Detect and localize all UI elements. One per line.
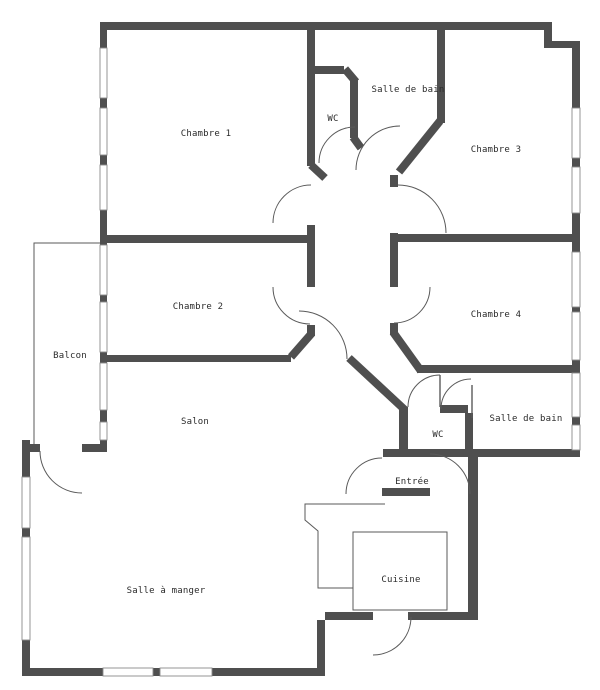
door-arc-salle-de-bain-bas <box>441 379 471 409</box>
wall-segment <box>544 41 580 48</box>
wall-segment <box>437 30 445 123</box>
wall-segment <box>440 405 468 413</box>
wall-segment <box>383 449 580 457</box>
wall-diagonal <box>345 69 356 82</box>
wall-segment <box>22 444 40 452</box>
room-label-chambre-4: Chambre 4 <box>471 310 522 320</box>
window <box>572 252 580 307</box>
room-label-chambre-3: Chambre 3 <box>471 145 522 155</box>
window <box>103 668 153 676</box>
wall-segment <box>382 488 430 496</box>
door-arc-entree-gauche <box>346 458 382 494</box>
wall-segment <box>325 612 373 620</box>
wall-segment <box>22 528 30 537</box>
wall-segment <box>572 213 580 252</box>
room-label-chambre-1: Chambre 1 <box>181 129 232 139</box>
window <box>100 165 107 210</box>
wall-segment <box>100 98 107 108</box>
room-label-chambre-2: Chambre 2 <box>173 302 224 312</box>
wall-segment <box>417 365 578 373</box>
window <box>572 425 580 450</box>
wall-diagonal <box>353 137 361 148</box>
kitchen-counter-outline <box>305 504 385 588</box>
wall-segment <box>100 235 315 243</box>
room-label-salle-de-bain-bas: Salle de bain <box>489 414 562 424</box>
wall-segment <box>465 413 473 449</box>
window <box>100 245 107 295</box>
door-arc-wc-bas <box>408 375 440 407</box>
wall-segment <box>350 80 358 138</box>
wall-segment <box>100 410 107 422</box>
door-arc-balcon <box>40 451 82 493</box>
wall-diagonal <box>311 165 325 178</box>
room-label-cuisine: Cuisine <box>381 575 420 585</box>
wall-segment <box>212 668 325 676</box>
wall-diagonal <box>291 333 312 357</box>
room-label-salle-a-manger: Salle à manger <box>127 586 206 596</box>
door-arc-chambre-2 <box>273 287 310 324</box>
wall-segment <box>101 22 551 30</box>
door-arc-chambre-3 <box>398 185 446 233</box>
room-label-entree: Entrée <box>395 476 429 487</box>
window <box>100 302 107 352</box>
wall-segment <box>100 440 107 452</box>
kitchen-floor-outline <box>353 532 447 610</box>
window <box>100 422 107 440</box>
door-arc-chambre-1 <box>273 185 311 223</box>
door-arc-wc-haut <box>319 127 355 163</box>
wall-diagonal <box>393 332 421 371</box>
wall-segment <box>100 295 107 302</box>
window <box>572 373 580 417</box>
wall-segment <box>22 640 30 676</box>
wall-segment <box>22 668 103 676</box>
wall-segment <box>100 22 107 48</box>
thin-outlines <box>34 243 447 610</box>
wall-segment <box>572 417 580 425</box>
wall-segment <box>395 234 578 242</box>
wall-segment <box>317 620 325 676</box>
room-label-salle-de-bain-haut: Salle de bain <box>371 85 444 95</box>
wall-segment <box>153 668 160 676</box>
window <box>160 668 212 676</box>
wall-segment <box>572 307 580 312</box>
wall-segment <box>408 612 478 620</box>
room-label-salon: Salon <box>181 417 209 427</box>
wall-segment <box>307 225 315 287</box>
room-label-wc-haut: WC <box>327 114 338 124</box>
window <box>22 477 30 528</box>
wall-segment <box>100 355 291 362</box>
balcony-outline <box>34 243 100 444</box>
floor-plan-drawing: Chambre 1 Chambre 2 Chambre 3 Chambre 4 … <box>0 0 600 690</box>
window <box>572 167 580 213</box>
window <box>100 363 107 410</box>
wall-segment <box>399 407 408 449</box>
door-arc-chambre-4 <box>394 287 430 323</box>
door-arc-entree-droite <box>430 454 470 494</box>
wall-segment <box>572 48 580 108</box>
window <box>100 48 107 98</box>
room-label-balcon: Balcon <box>53 351 87 361</box>
wall-diagonal <box>349 358 405 410</box>
wall-segment <box>315 66 344 74</box>
door-arc-cuisine <box>373 617 411 655</box>
floor-plan: Chambre 1 Chambre 2 Chambre 3 Chambre 4 … <box>0 0 600 690</box>
wall-segment <box>100 155 107 165</box>
wall-diagonal <box>399 121 440 172</box>
door-arc-salle-de-bain-haut <box>356 126 400 170</box>
wall-segment <box>307 30 315 166</box>
wall-segment <box>390 175 398 187</box>
window <box>100 108 107 155</box>
wall-segment <box>572 158 580 167</box>
window <box>572 108 580 158</box>
room-label-wc-bas: WC <box>432 430 443 440</box>
window <box>572 312 580 360</box>
window <box>22 537 30 640</box>
wall-segment <box>468 457 478 620</box>
